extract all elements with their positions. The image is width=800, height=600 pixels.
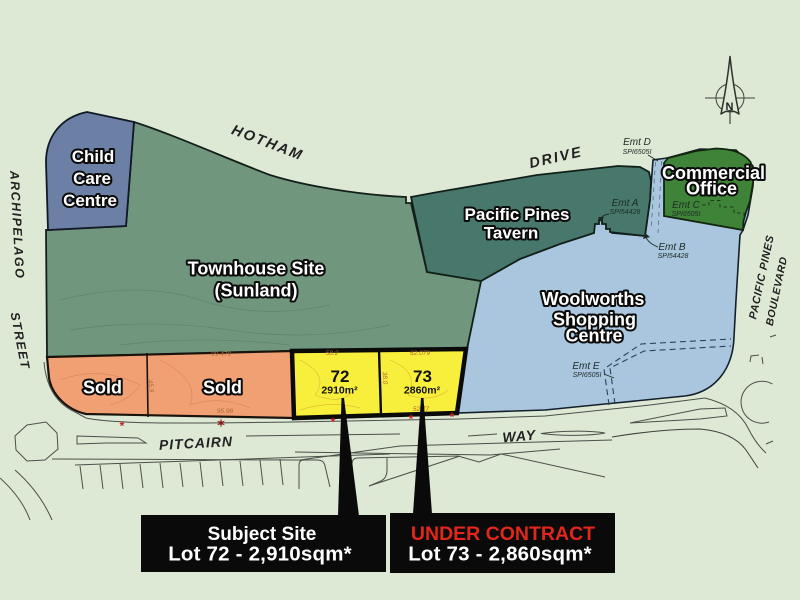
svg-text:Emt B: Emt B xyxy=(658,242,686,253)
svg-text:Office: Office xyxy=(686,179,737,199)
svg-text:Woolworths: Woolworths xyxy=(542,289,645,309)
svg-text:Child: Child xyxy=(72,147,115,166)
svg-text:73: 73 xyxy=(413,367,432,386)
svg-text:(Sunland): (Sunland) xyxy=(215,281,298,301)
svg-text:Pacific Pines: Pacific Pines xyxy=(465,205,570,224)
svg-text:Emt C: Emt C xyxy=(672,200,701,211)
svg-text:2910m²: 2910m² xyxy=(321,385,358,397)
svg-text:SPI6505I: SPI6505I xyxy=(672,211,701,218)
svg-text:SPI6505I: SPI6505I xyxy=(623,149,652,156)
svg-text:*: * xyxy=(120,419,125,433)
svg-text:Lot 72 - 2,910sqm*: Lot 72 - 2,910sqm* xyxy=(168,543,352,566)
svg-text:*: * xyxy=(409,412,414,426)
svg-text:2860m²: 2860m² xyxy=(404,385,441,397)
svg-text:38.0: 38.0 xyxy=(381,372,389,385)
svg-text:62.079: 62.079 xyxy=(410,350,430,357)
svg-text:Tavern: Tavern xyxy=(484,224,539,243)
svg-text:Emt A: Emt A xyxy=(612,198,639,209)
svg-text:SPI54428: SPI54428 xyxy=(610,209,641,216)
svg-text:SPI6505I: SPI6505I xyxy=(573,372,602,379)
svg-text:Care: Care xyxy=(73,169,111,188)
svg-text:Lot 73 - 2,860sqm*: Lot 73 - 2,860sqm* xyxy=(408,543,592,566)
svg-text:Emt E: Emt E xyxy=(572,361,600,372)
svg-text:Centre: Centre xyxy=(63,191,117,210)
svg-text:SPI54428: SPI54428 xyxy=(658,253,689,260)
svg-text:58.2: 58.2 xyxy=(326,350,339,357)
svg-text:Centre: Centre xyxy=(565,326,622,346)
svg-text:Sold: Sold xyxy=(83,378,122,398)
svg-text:Townhouse Site: Townhouse Site xyxy=(188,259,325,279)
svg-text:Sold: Sold xyxy=(203,378,242,398)
svg-text:N: N xyxy=(726,101,734,113)
svg-text:99.479: 99.479 xyxy=(211,351,231,358)
svg-text:Emt D: Emt D xyxy=(623,137,651,148)
svg-text:WAY: WAY xyxy=(502,426,538,445)
svg-text:72: 72 xyxy=(331,367,350,386)
svg-text:*: * xyxy=(331,415,336,429)
svg-text:95.98: 95.98 xyxy=(217,408,234,415)
svg-text:✶: ✶ xyxy=(216,418,225,430)
svg-text:*: * xyxy=(450,410,455,424)
